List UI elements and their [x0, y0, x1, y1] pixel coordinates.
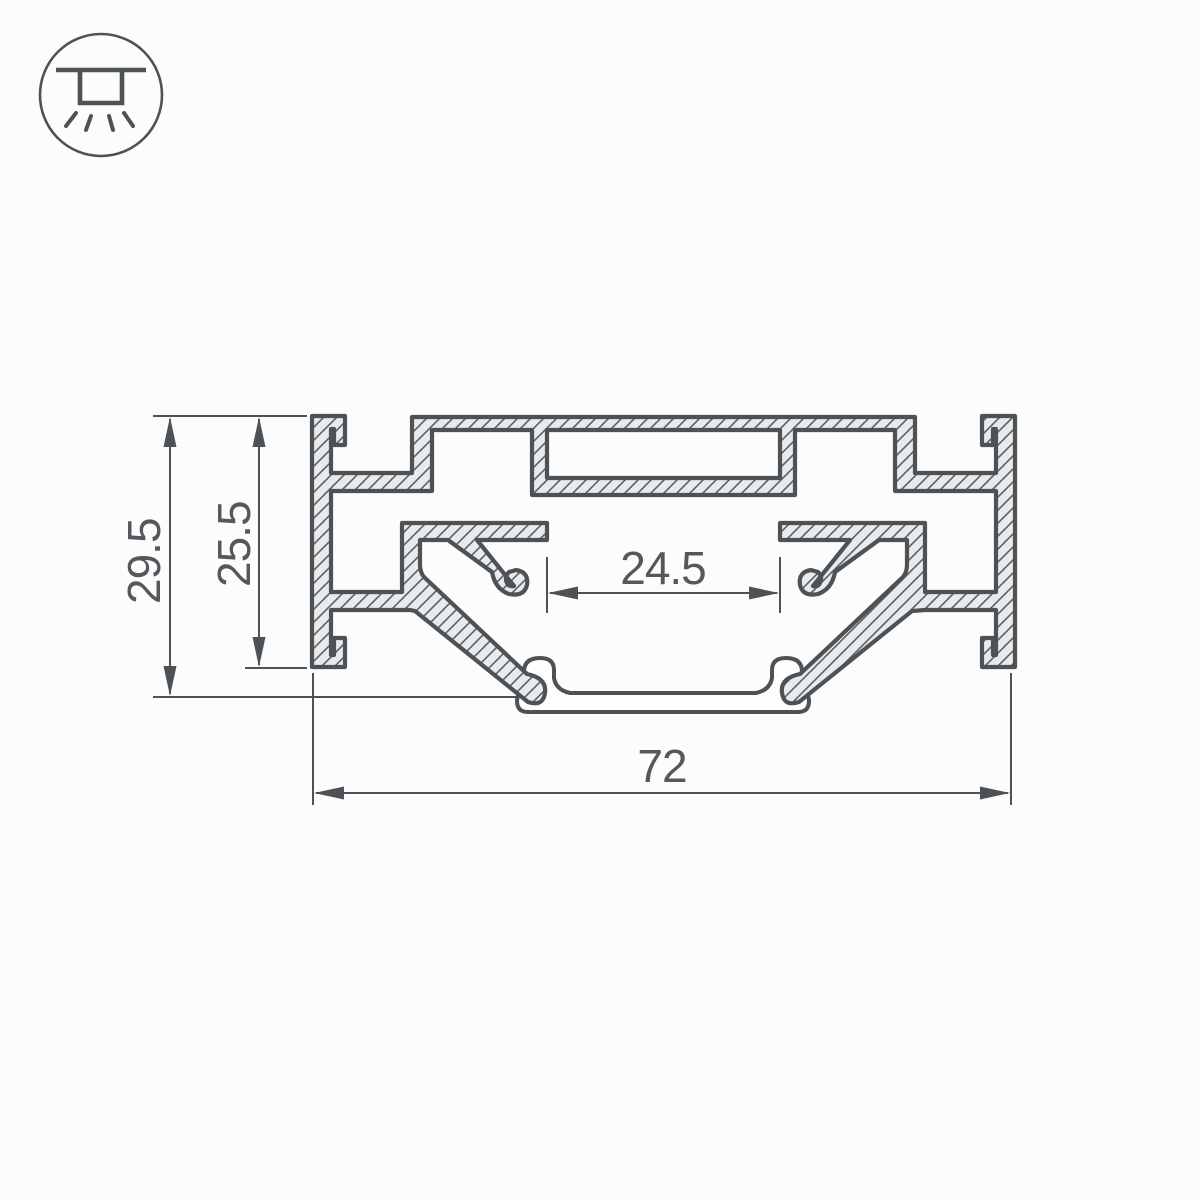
dimension-label-body-height: 25.5: [208, 501, 260, 587]
drawing-svg: 29.5 25.5 24.5 72: [0, 0, 1200, 1200]
dimension-label-overall-height: 29.5: [118, 518, 170, 604]
arrowhead-up: [164, 417, 177, 447]
light-rays-icon: [66, 113, 133, 130]
dimension-label-channel-width: 24.5: [620, 542, 706, 594]
arrowhead-down: [164, 666, 177, 696]
arrowhead-down: [253, 637, 266, 667]
arrowhead-up: [253, 417, 266, 447]
technical-drawing-page: 29.5 25.5 24.5 72: [0, 0, 1200, 1200]
arrowhead-left: [314, 787, 344, 800]
mount-type-icon: [40, 34, 162, 156]
arrowhead-right: [749, 587, 779, 600]
diffuser: [517, 658, 809, 712]
fixture-box-icon: [80, 70, 122, 103]
arrowhead-right: [980, 787, 1010, 800]
dimension-label-overall-width: 72: [637, 740, 686, 792]
arrowhead-left: [548, 587, 578, 600]
icon-circle: [40, 34, 162, 156]
